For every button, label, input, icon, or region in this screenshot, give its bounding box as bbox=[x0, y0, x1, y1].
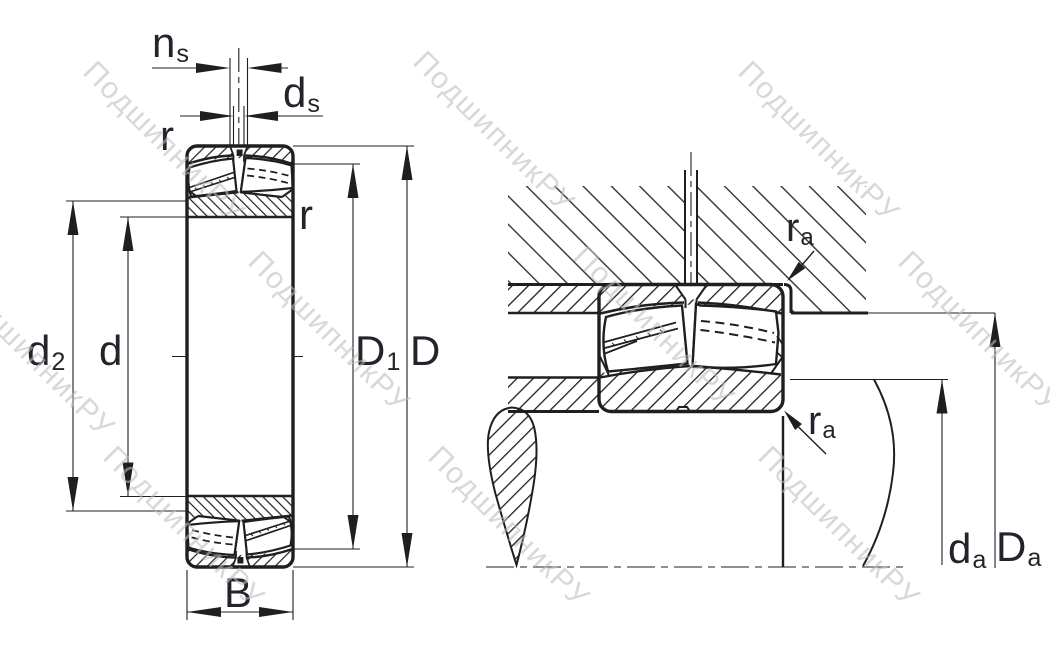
shaft-abutment bbox=[508, 378, 599, 412]
dim-label-ns: ns bbox=[152, 22, 189, 67]
right-view-mounted-section bbox=[486, 152, 1001, 568]
dim-label-D: D bbox=[410, 330, 440, 372]
dim-label-ra-shaft: ra bbox=[808, 401, 836, 443]
dim-label-ds: ds bbox=[283, 72, 320, 117]
dim-label-Da: Da bbox=[996, 526, 1041, 571]
technical-drawing: ns ds r r d2 d D1 D B ra ra da Da Подшип… bbox=[0, 0, 1050, 650]
cover-ring bbox=[508, 285, 599, 313]
dim-label-da: da bbox=[948, 528, 986, 573]
dim-label-r-side: r bbox=[299, 194, 313, 236]
dim-label-d: d bbox=[99, 330, 122, 372]
housing-shoulder bbox=[784, 285, 791, 314]
dim-label-ra-housing: ra bbox=[786, 208, 814, 250]
